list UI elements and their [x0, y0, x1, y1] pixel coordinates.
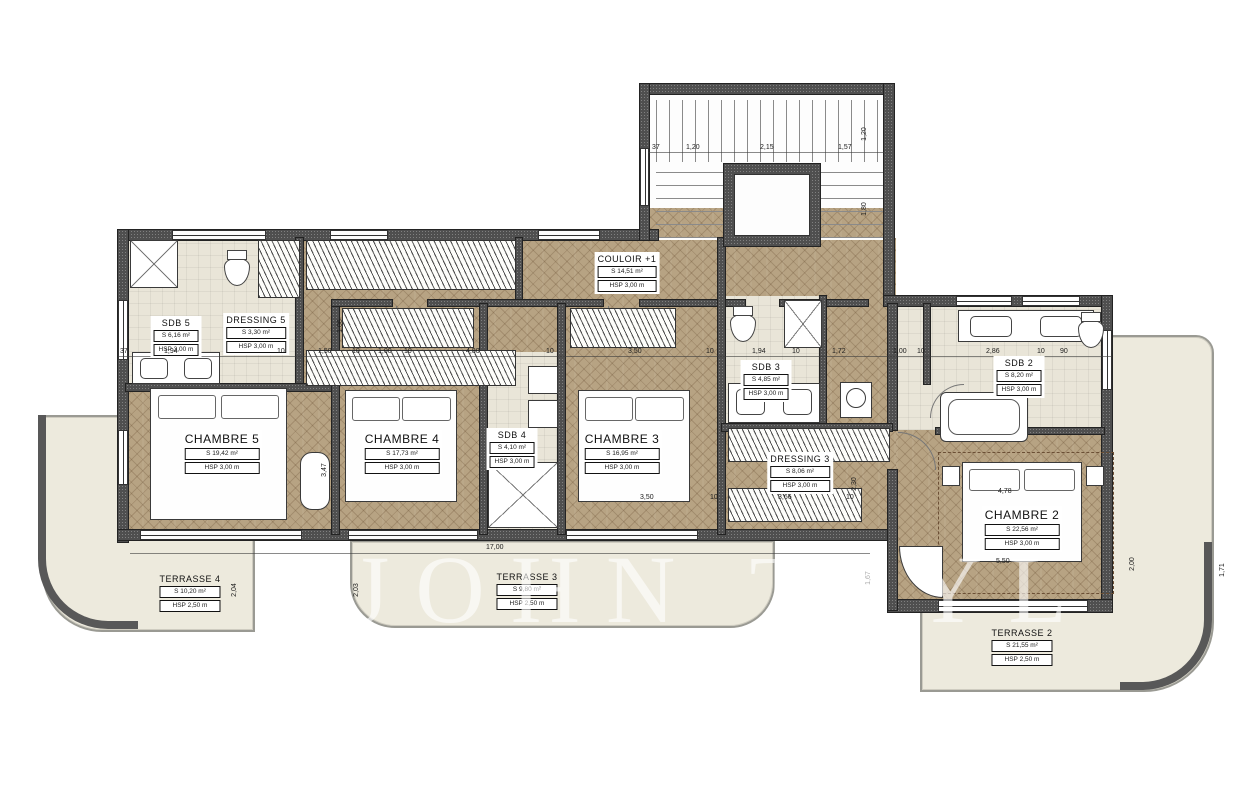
room-title: SDB 5 [154, 318, 199, 328]
dim-label: 1,94 [752, 348, 766, 356]
dim-line-mid [118, 356, 1112, 357]
room-height: HSP 2,50 m [991, 654, 1052, 666]
room-area: S 4,10 m² [490, 442, 535, 454]
dim-label: 10 [846, 494, 854, 502]
window-right-sdb2 [1102, 330, 1112, 390]
dim-label: 90 [1060, 348, 1068, 356]
label-sdb3: SDB 3 S 4,85 m² HSP 3,00 m [741, 360, 792, 402]
dim-label: 2,03 [353, 583, 361, 597]
room-height: HSP 3,00 m [997, 384, 1042, 396]
dim-label: 37 [120, 348, 128, 356]
dim-label: 1,06 [337, 319, 345, 333]
label-dressing3: DRESSING 3 S 8,06 m² HSP 3,00 m [767, 452, 833, 494]
room-height: HSP 3,00 m [490, 456, 535, 468]
window-top-2 [330, 230, 388, 240]
dim-label: 3,66 [778, 494, 792, 502]
room-area: S 17,73 m² [365, 448, 440, 460]
label-sdb2: SDB 2 S 8,20 m² HSP 3,00 m [994, 356, 1045, 398]
bay-chambre2 [938, 600, 1088, 612]
wall-chambre2-left-lower [888, 470, 897, 610]
dim-label: 2,00 [1129, 557, 1137, 571]
dim-label: 10 [404, 348, 412, 356]
dim-label: 1,67 [865, 571, 873, 585]
partition-sdb2-entry [924, 304, 930, 384]
label-chambre4: CHAMBRE 4 S 17,73 m² HSP 3,00 m [362, 430, 443, 476]
toilet-sdb4 [528, 400, 558, 428]
wardrobe-dressing5-top [306, 240, 516, 290]
room-height: HSP 3,00 m [585, 462, 660, 474]
room-height: HSP 3,00 m [744, 388, 789, 400]
shower-sdb3 [784, 300, 822, 348]
room-title: TERRASSE 2 [991, 628, 1052, 638]
dim-label: 1,20 [686, 144, 700, 152]
room-title: CHAMBRE 2 [985, 508, 1060, 522]
dim-line-bottom [130, 553, 870, 554]
bay-chambre4 [348, 530, 478, 540]
room-area: S 9,80 m² [496, 584, 557, 596]
dim-label: 1,50 [318, 348, 332, 356]
dim-label: 10 [277, 348, 285, 356]
room-title: TERRASSE 4 [159, 574, 220, 584]
room-area: S 19,42 m² [185, 448, 260, 460]
room-title: COULOIR +1 [598, 254, 657, 264]
window-top-3 [538, 230, 600, 240]
floor-plan: 37 1,94 10 1,50 10 1,00 10 4,80 10 3,50 … [0, 0, 1254, 796]
label-terrasse2: TERRASSE 2 S 21,55 m² HSP 2,50 m [988, 626, 1055, 668]
label-chambre5: CHAMBRE 5 S 19,42 m² HSP 3,00 m [182, 430, 263, 476]
room-title: CHAMBRE 5 [185, 432, 260, 446]
window-top-sdb2-2 [1022, 296, 1080, 306]
wall-stair-top [640, 84, 893, 94]
room-area: S 10,20 m² [159, 586, 220, 598]
room-title: DRESSING 3 [770, 454, 830, 464]
dim-label: 2,30 [851, 477, 859, 491]
room-height: HSP 2,50 m [496, 598, 557, 610]
sink-sdb4 [528, 366, 558, 394]
room-area: S 21,55 m² [991, 640, 1052, 652]
room-height: HSP 3,00 m [598, 280, 657, 292]
dim-label: 10 [706, 348, 714, 356]
dim-label: 2,86 [986, 348, 1000, 356]
window-top-sdb2-1 [956, 296, 1012, 306]
room-title: DRESSING 5 [226, 315, 286, 325]
room-height: HSP 3,00 m [770, 480, 830, 492]
partition-chambre4-sdb4 [480, 304, 487, 534]
label-couloir: COULOIR +1 S 14,51 m² HSP 3,00 m [595, 252, 660, 294]
wall-stair-right [884, 84, 894, 306]
corridor-wall-seg1 [332, 300, 392, 306]
dim-label: 10 [1037, 348, 1045, 356]
dim-label: 1,57 [838, 144, 852, 152]
dim-label: 3,47 [321, 463, 329, 477]
room-area: S 16,95 m² [585, 448, 660, 460]
room-title: TERRASSE 3 [496, 572, 557, 582]
dim-line-stair [648, 152, 884, 153]
room-area: S 14,51 m² [598, 266, 657, 278]
partition-chambre3-sdb3 [718, 238, 725, 534]
wardrobe-chambre3 [570, 308, 676, 348]
dim-label: 1,71 [1219, 563, 1227, 577]
vanity-sdb2 [958, 310, 1094, 342]
dim-label: 1,00 [893, 348, 907, 356]
label-terrasse3: TERRASSE 3 S 9,80 m² HSP 2,50 m [493, 570, 560, 612]
wall-chambre2-left-upper [888, 304, 897, 430]
closet-sdb5 [258, 240, 300, 298]
dim-label: 2,04 [231, 583, 239, 597]
room-area: S 8,20 m² [997, 370, 1042, 382]
room-title: CHAMBRE 3 [585, 432, 660, 446]
dim-label: 4,78 [998, 488, 1012, 496]
dim-label: 17,00 [486, 544, 504, 552]
room-height: HSP 3,00 m [365, 462, 440, 474]
dim-label: 1,72 [832, 348, 846, 356]
label-terrasse4: TERRASSE 4 S 10,20 m² HSP 2,50 m [156, 572, 223, 614]
corridor-wall-seg3 [640, 300, 745, 306]
wardrobe-chambre4 [342, 308, 474, 348]
room-height: HSP 3,00 m [185, 462, 260, 474]
partition-dressing5-couloir [516, 238, 522, 302]
dim-label: 1,20 [861, 127, 869, 141]
dim-label: 10 [792, 348, 800, 356]
corridor-wall-seg2 [428, 300, 603, 306]
dim-label: 10 [352, 348, 360, 356]
stair-treads-left [656, 162, 724, 238]
nightstand-left-chambre2 [942, 466, 960, 486]
dim-label: 1,80 [861, 202, 869, 216]
dim-label: 10 [710, 494, 718, 502]
fixture-nook-bowl [846, 388, 866, 408]
room-area: S 4,85 m² [744, 374, 789, 386]
room-area: S 8,06 m² [770, 466, 830, 478]
room-title: SDB 4 [490, 430, 535, 440]
dim-label: 10 [917, 348, 925, 356]
window-top-1 [172, 230, 266, 240]
room-height: HSP 2,50 m [159, 600, 220, 612]
nightstand-right-chambre2 [1086, 466, 1104, 486]
room-area: S 22,56 m² [985, 524, 1060, 536]
shower-sdb5 [130, 240, 178, 288]
room-title: SDB 2 [997, 358, 1042, 368]
room-area: S 3,30 m² [226, 327, 286, 339]
dim-label: 1,00 [378, 348, 392, 356]
partition-sdb4-chambre3 [558, 304, 565, 534]
dim-label: 4,80 [466, 348, 480, 356]
bay-chambre3 [566, 530, 698, 540]
room-area: S 6,16 m² [154, 330, 199, 342]
elevator-cab [734, 174, 810, 236]
room-height: HSP 3,00 m [985, 538, 1060, 550]
dim-label: 3,50 [640, 494, 654, 502]
bay-chambre5 [140, 530, 302, 540]
window-stair-left [640, 148, 649, 206]
dim-label: 37 [652, 144, 660, 152]
shower-sdb4 [488, 462, 558, 528]
label-sdb4: SDB 4 S 4,10 m² HSP 3,00 m [487, 428, 538, 470]
dim-label: 1,94 [164, 348, 178, 356]
label-chambre2: CHAMBRE 2 S 22,56 m² HSP 3,00 m [982, 506, 1063, 552]
chaise-chambre5 [300, 452, 330, 510]
bathtub-sdb2 [940, 392, 1028, 442]
partition-chambre5-chambre4 [332, 304, 339, 534]
window-left-2 [118, 430, 128, 485]
dim-label: 5,50 [996, 558, 1010, 566]
room-title: CHAMBRE 4 [365, 432, 440, 446]
room-title: SDB 3 [744, 362, 789, 372]
dim-label: 10 [546, 348, 554, 356]
label-chambre3: CHAMBRE 3 S 16,95 m² HSP 3,00 m [582, 430, 663, 476]
dim-label: 2,15 [760, 144, 774, 152]
dim-label: 3,50 [628, 348, 642, 356]
stair-treads-right [820, 162, 884, 238]
